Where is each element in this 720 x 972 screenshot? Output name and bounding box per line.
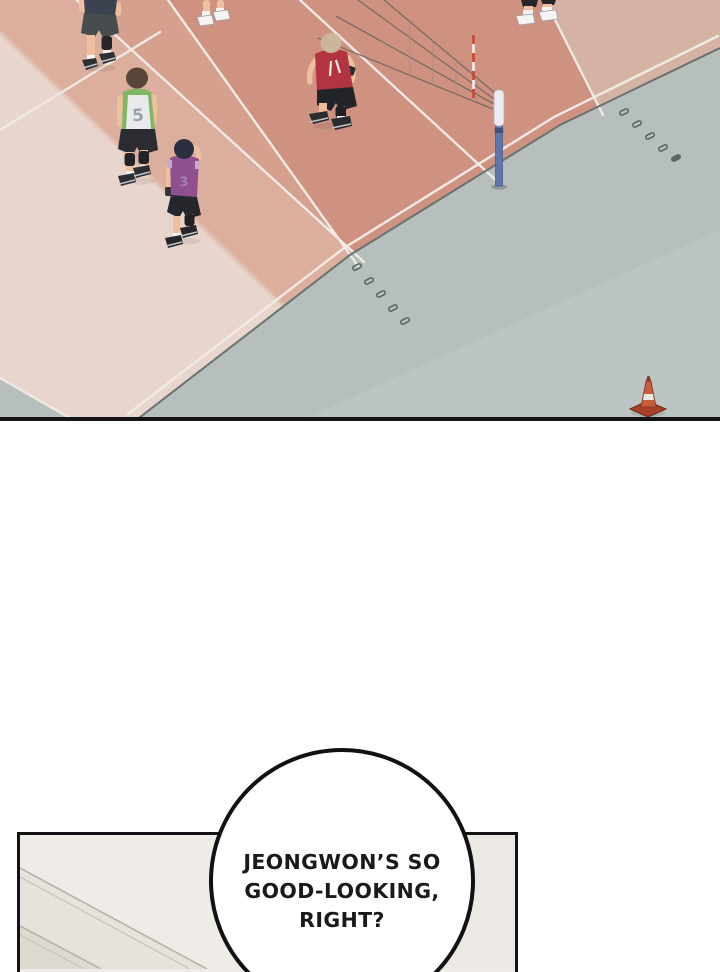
knee-pad (102, 36, 113, 50)
knee-pad (125, 153, 136, 166)
comic-page: 5 3 (0, 0, 720, 972)
speech-line-3: RIGHT? (213, 906, 471, 935)
knee-pad (185, 214, 195, 226)
court-panel: 5 3 (0, 0, 720, 421)
green-player-hair (126, 68, 148, 89)
purple-player-hair (174, 139, 194, 159)
jersey-number-3: 3 (179, 175, 189, 191)
jersey-number-mark (330, 61, 331, 76)
speech-text: JEONGWON’S SO GOOD-LOOKING, RIGHT? (213, 848, 471, 935)
red-player-hair (321, 33, 342, 53)
post-padding (494, 90, 504, 126)
net-antenna (472, 35, 475, 98)
speech-line-2: GOOD-LOOKING, (213, 877, 471, 906)
post-ring (495, 128, 503, 133)
jersey-number-5: 5 (132, 106, 145, 127)
court-scene: 5 3 (0, 0, 720, 421)
speech-line-1: JEONGWON’S SO (213, 848, 471, 877)
red-jersey (315, 49, 353, 92)
speech-bubble: JEONGWON’S SO GOOD-LOOKING, RIGHT? (209, 748, 475, 972)
panel-border-bottom (0, 417, 720, 421)
cone-stripe (643, 394, 654, 400)
knee-pad (139, 151, 150, 164)
